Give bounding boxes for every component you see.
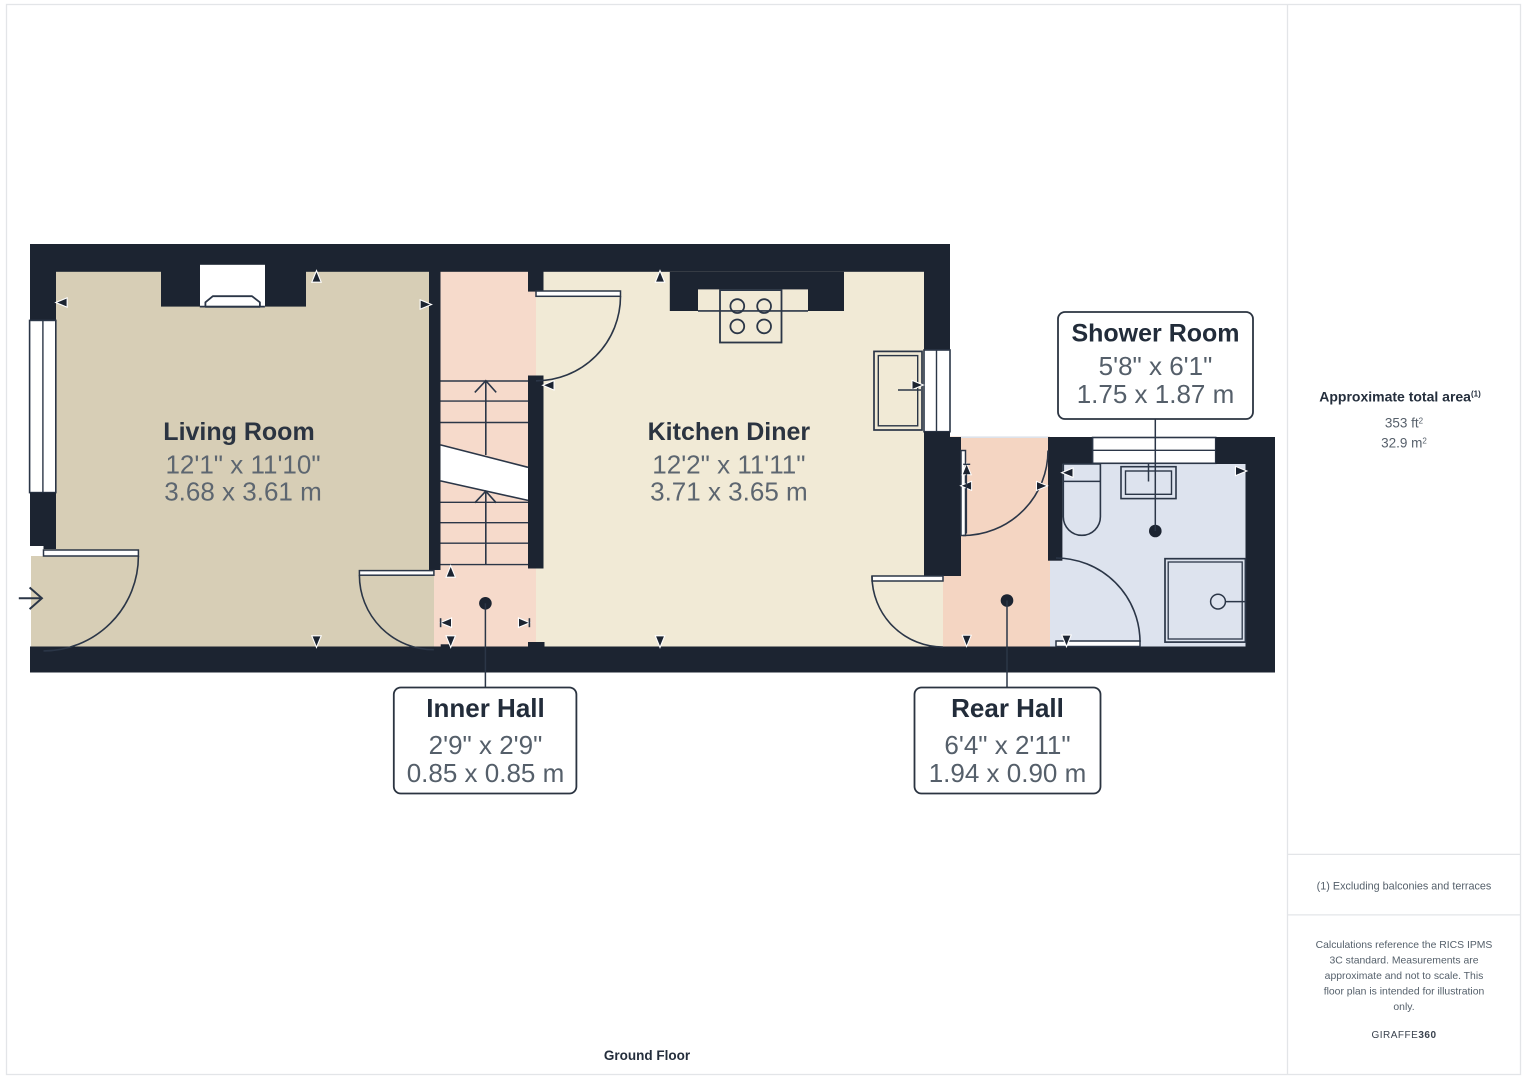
svg-text:(1) Excluding balconies and te: (1) Excluding balconies and terraces	[1317, 881, 1492, 893]
svg-text:3.71 x 3.65 m: 3.71 x 3.65 m	[650, 477, 808, 507]
svg-text:5'8" x 6'1": 5'8" x 6'1"	[1099, 351, 1213, 381]
svg-text:Ground Floor: Ground Floor	[604, 1048, 691, 1063]
svg-text:2'9" x 2'9": 2'9" x 2'9"	[429, 730, 543, 760]
svg-text:1.94 x 0.90 m: 1.94 x 0.90 m	[929, 758, 1087, 788]
svg-text:Inner Hall: Inner Hall	[426, 693, 544, 723]
svg-text:12'2" x 11'11": 12'2" x 11'11"	[652, 450, 805, 480]
svg-text:32.9 m2: 32.9 m2	[1381, 436, 1427, 451]
svg-text:only.: only.	[1393, 1002, 1414, 1013]
svg-text:floor plan is intended for ill: floor plan is intended for illustration	[1324, 987, 1485, 998]
svg-text:353 ft2: 353 ft2	[1385, 416, 1424, 431]
svg-text:GIRAFFE360: GIRAFFE360	[1371, 1030, 1436, 1041]
svg-text:0.85 x 0.85 m: 0.85 x 0.85 m	[407, 758, 565, 788]
svg-text:12'1" x 11'10": 12'1" x 11'10"	[165, 450, 320, 480]
svg-text:1.75 x 1.87 m: 1.75 x 1.87 m	[1077, 379, 1235, 409]
svg-text:Living Room: Living Room	[163, 418, 314, 446]
svg-text:Shower Room: Shower Room	[1071, 320, 1239, 348]
svg-text:Calculations reference the RIC: Calculations reference the RICS IPMS	[1316, 940, 1493, 951]
svg-text:6'4" x 2'11": 6'4" x 2'11"	[944, 730, 1070, 760]
svg-text:Approximate total area(1): Approximate total area(1)	[1319, 389, 1481, 405]
svg-text:Rear Hall: Rear Hall	[951, 693, 1064, 723]
svg-text:3C standard. Measurements are: 3C standard. Measurements are	[1329, 956, 1478, 967]
svg-text:approximate and not to scale.: approximate and not to scale. This	[1325, 971, 1484, 982]
svg-text:Kitchen Diner: Kitchen Diner	[648, 418, 811, 446]
svg-text:3.68 x 3.61 m: 3.68 x 3.61 m	[164, 477, 322, 507]
